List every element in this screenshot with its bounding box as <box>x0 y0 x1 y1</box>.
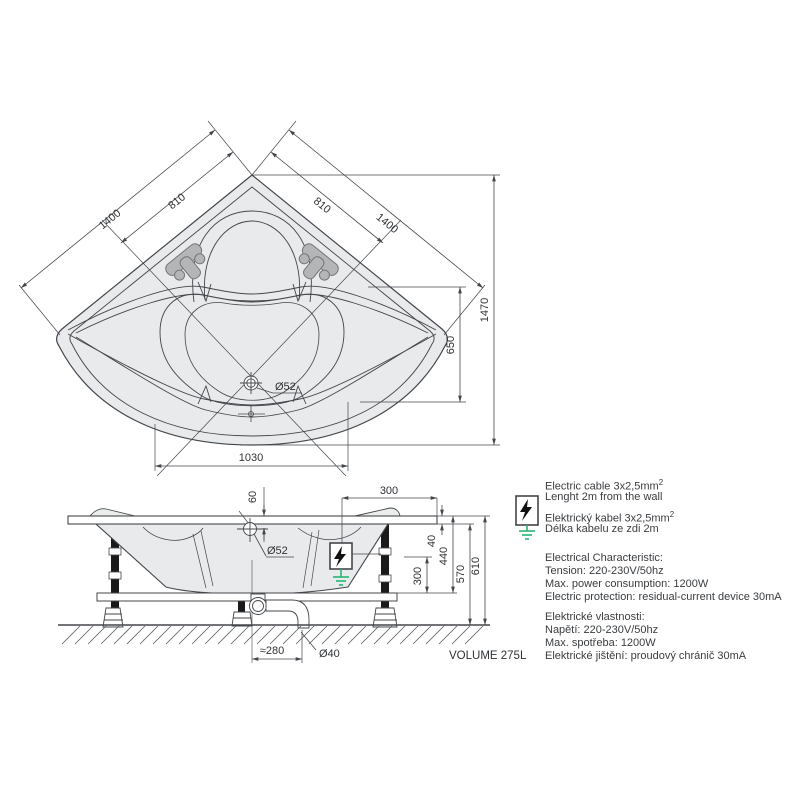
dim-label-810-left: 810 <box>166 191 188 212</box>
dim-label-650: 650 <box>445 336 457 354</box>
note-elec-cz-3: Elektrické jištění: proudový chránič 30m… <box>545 650 746 662</box>
frame-rail <box>97 593 397 601</box>
pipe-label-40: Ø40 <box>319 648 340 660</box>
dim-label-810-right: 810 <box>311 195 333 216</box>
plan-view: 1400 810 810 1400 1470 650 1030 Ø52 <box>19 121 500 476</box>
waste-pipe <box>266 600 309 628</box>
dim-label-300-top: 300 <box>380 485 398 497</box>
dim-label-570: 570 <box>455 565 467 583</box>
adjustable-feet <box>103 608 397 627</box>
side-view: 60 300 Ø52 40 440 570 610 300 ≈280 Ø40 V… <box>58 485 527 663</box>
dim-label-60: 60 <box>247 491 259 503</box>
note-elec-en-1: Tension: 220-230V/50hz <box>545 565 664 577</box>
dim-label-1400-right: 1400 <box>374 211 401 236</box>
dim-label-610: 610 <box>470 557 482 575</box>
technical-drawing-page: 1400 810 810 1400 1470 650 1030 Ø52 <box>0 0 800 800</box>
note-elec-en-2: Max. power consumption: 1200W <box>545 578 708 590</box>
dim-label-280: ≈280 <box>260 645 284 657</box>
earth-ground-icon <box>519 525 535 539</box>
ground-hatching <box>62 626 483 644</box>
dim-label-40: 40 <box>426 535 438 547</box>
dim-label-1470: 1470 <box>479 298 491 322</box>
dim-label-1030: 1030 <box>239 452 263 464</box>
note-cable-cz-2: Délka kabelu ze zdi 2m <box>545 523 659 535</box>
note-elec-en-title: Electrical Characteristic: <box>545 552 663 564</box>
volume-label: VOLUME 275L <box>449 650 527 662</box>
notes-electrical-icon <box>516 496 538 539</box>
note-elec-cz-title: Elektrické vlastnosti: <box>545 611 645 623</box>
note-elec-en-3: Electric protection: residual-current de… <box>545 591 782 603</box>
note-cable-en-2: Lenght 2m from the wall <box>545 491 662 503</box>
rim-lip-right <box>355 508 400 516</box>
note-elec-cz-1: Napětí: 220-230V/50hz <box>545 624 658 636</box>
drain-label-side: Ø52 <box>267 545 288 557</box>
note-elec-cz-2: Max. spotřeba: 1200W <box>545 637 656 649</box>
drain-label-plan: Ø52 <box>275 381 296 393</box>
dim-label-440: 440 <box>438 547 450 565</box>
bathtub-drawing: 1400 810 810 1400 1470 650 1030 Ø52 <box>0 0 800 800</box>
rim-lip-left <box>90 509 135 516</box>
dim-label-300-inner: 300 <box>412 567 424 585</box>
